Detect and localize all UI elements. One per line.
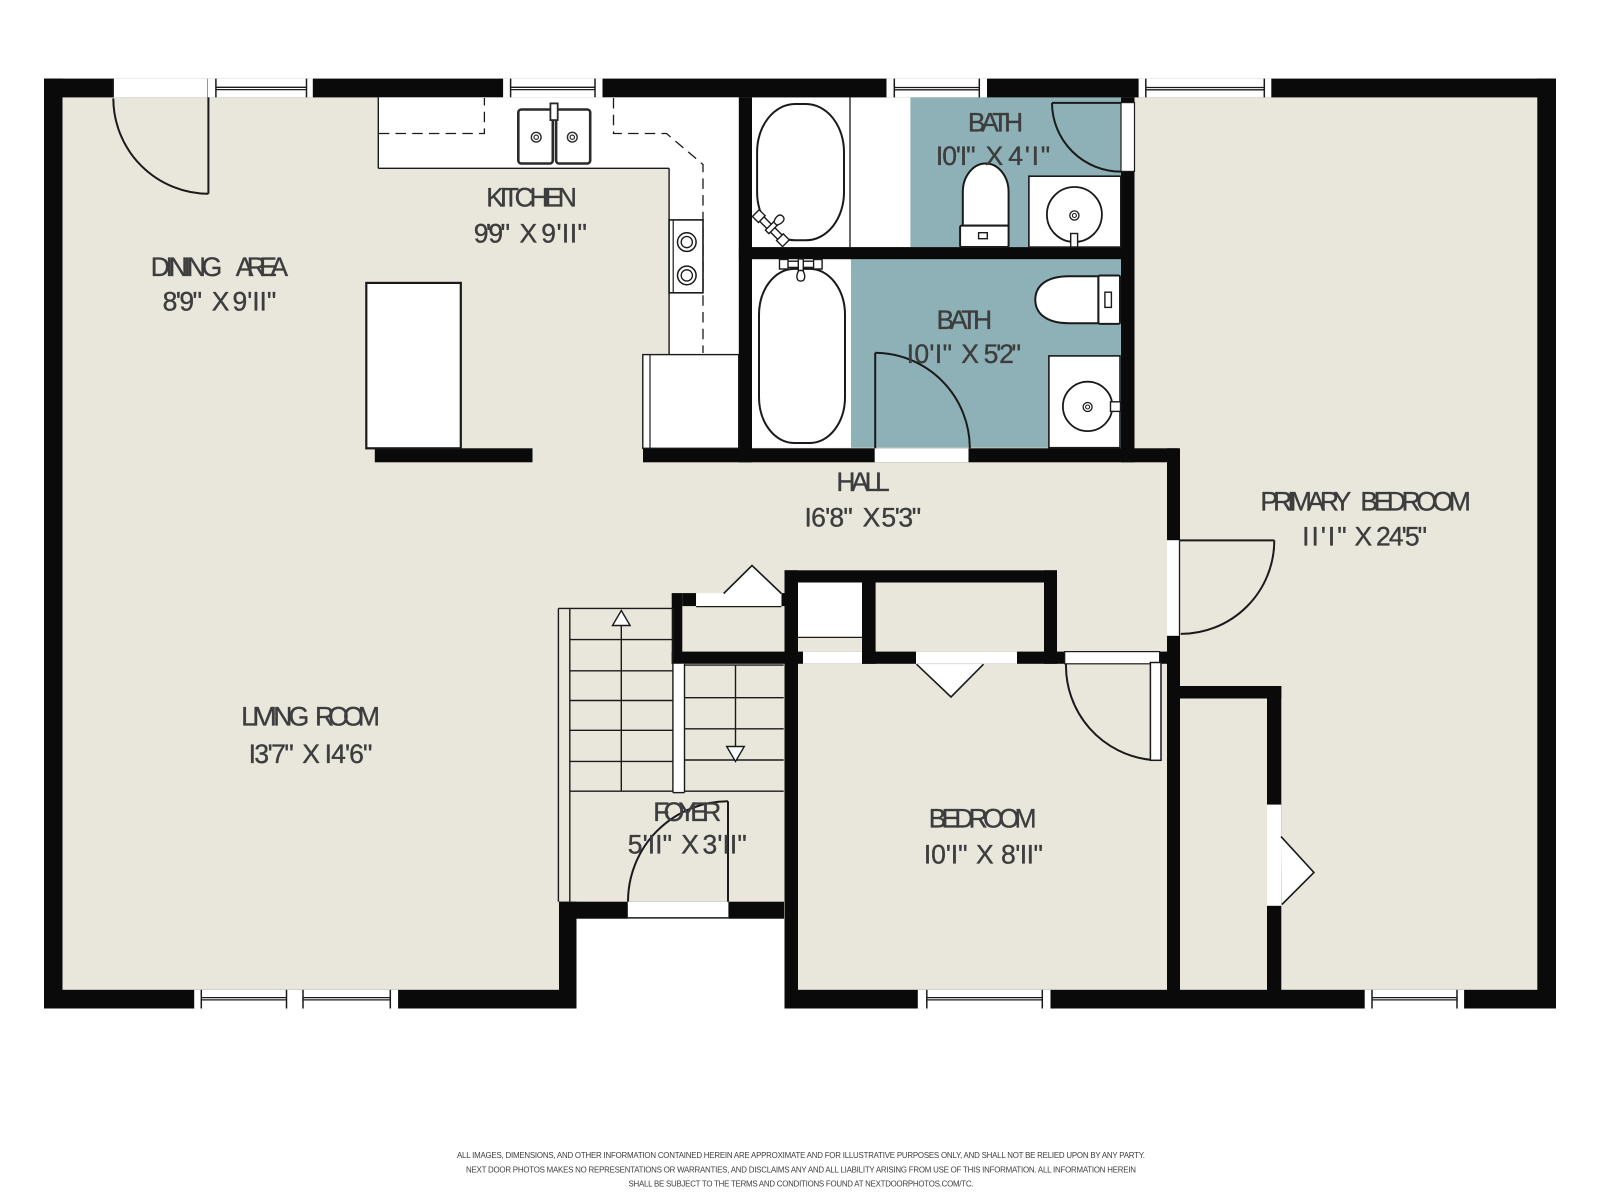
svg-text:X: X <box>681 830 699 860</box>
svg-text:I0'I": I0'I" <box>907 339 952 369</box>
svg-text:X: X <box>863 503 881 533</box>
svg-text:5'2": 5'2" <box>984 339 1022 369</box>
svg-text:KITCHEN: KITCHEN <box>486 182 577 212</box>
svg-text:SHALL BE SUBJECT TO THE TERMS: SHALL BE SUBJECT TO THE TERMS AND CONDIT… <box>629 1180 974 1189</box>
svg-text:X: X <box>520 219 538 249</box>
svg-text:BEDROOM: BEDROOM <box>1360 487 1470 517</box>
svg-text:NEXT DOOR PHOTOS MAKES NO REPR: NEXT DOOR PHOTOS MAKES NO REPRESENTATION… <box>466 1165 1136 1174</box>
svg-text:9'II": 9'II" <box>541 219 587 249</box>
svg-text:X: X <box>961 339 979 369</box>
svg-text:9'9": 9'9" <box>474 219 510 249</box>
svg-text:BATH: BATH <box>937 305 993 335</box>
svg-text:5'3": 5'3" <box>881 503 921 533</box>
svg-text:I3'7": I3'7" <box>249 739 294 769</box>
svg-text:I0'I": I0'I" <box>924 840 968 870</box>
svg-text:FOYER: FOYER <box>653 797 721 827</box>
svg-text:9'II": 9'II" <box>233 287 277 317</box>
svg-text:DINING: DINING <box>151 252 223 282</box>
svg-text:I0'I": I0'I" <box>936 141 976 171</box>
svg-text:X: X <box>986 141 1004 171</box>
svg-text:24'5": 24'5" <box>1376 522 1427 552</box>
svg-text:I4'6": I4'6" <box>325 739 373 769</box>
svg-text:AREA: AREA <box>236 252 289 282</box>
svg-text:II'I": II'I" <box>1302 522 1347 552</box>
svg-text:3'II": 3'II" <box>703 830 747 860</box>
svg-text:8'II": 8'II" <box>1001 840 1043 870</box>
svg-text:PRIMARY: PRIMARY <box>1260 487 1351 517</box>
svg-text:8'9": 8'9" <box>163 287 202 317</box>
svg-text:I6'8": I6'8" <box>805 503 853 533</box>
svg-text:5'II": 5'II" <box>628 830 672 860</box>
svg-text:HALL: HALL <box>836 467 889 497</box>
svg-text:4'I": 4'I" <box>1008 141 1050 171</box>
svg-text:ROOM: ROOM <box>315 702 380 732</box>
svg-text:LIVING: LIVING <box>241 702 309 732</box>
svg-text:X: X <box>1355 522 1373 552</box>
svg-text:BATH: BATH <box>968 108 1023 138</box>
svg-text:BEDROOM: BEDROOM <box>929 804 1037 834</box>
svg-text:X: X <box>302 739 320 769</box>
svg-text:X: X <box>212 287 230 317</box>
svg-text:ALL IMAGES, DIMENSIONS, AND OT: ALL IMAGES, DIMENSIONS, AND OTHER INFORM… <box>457 1151 1145 1160</box>
svg-text:X: X <box>976 840 994 870</box>
